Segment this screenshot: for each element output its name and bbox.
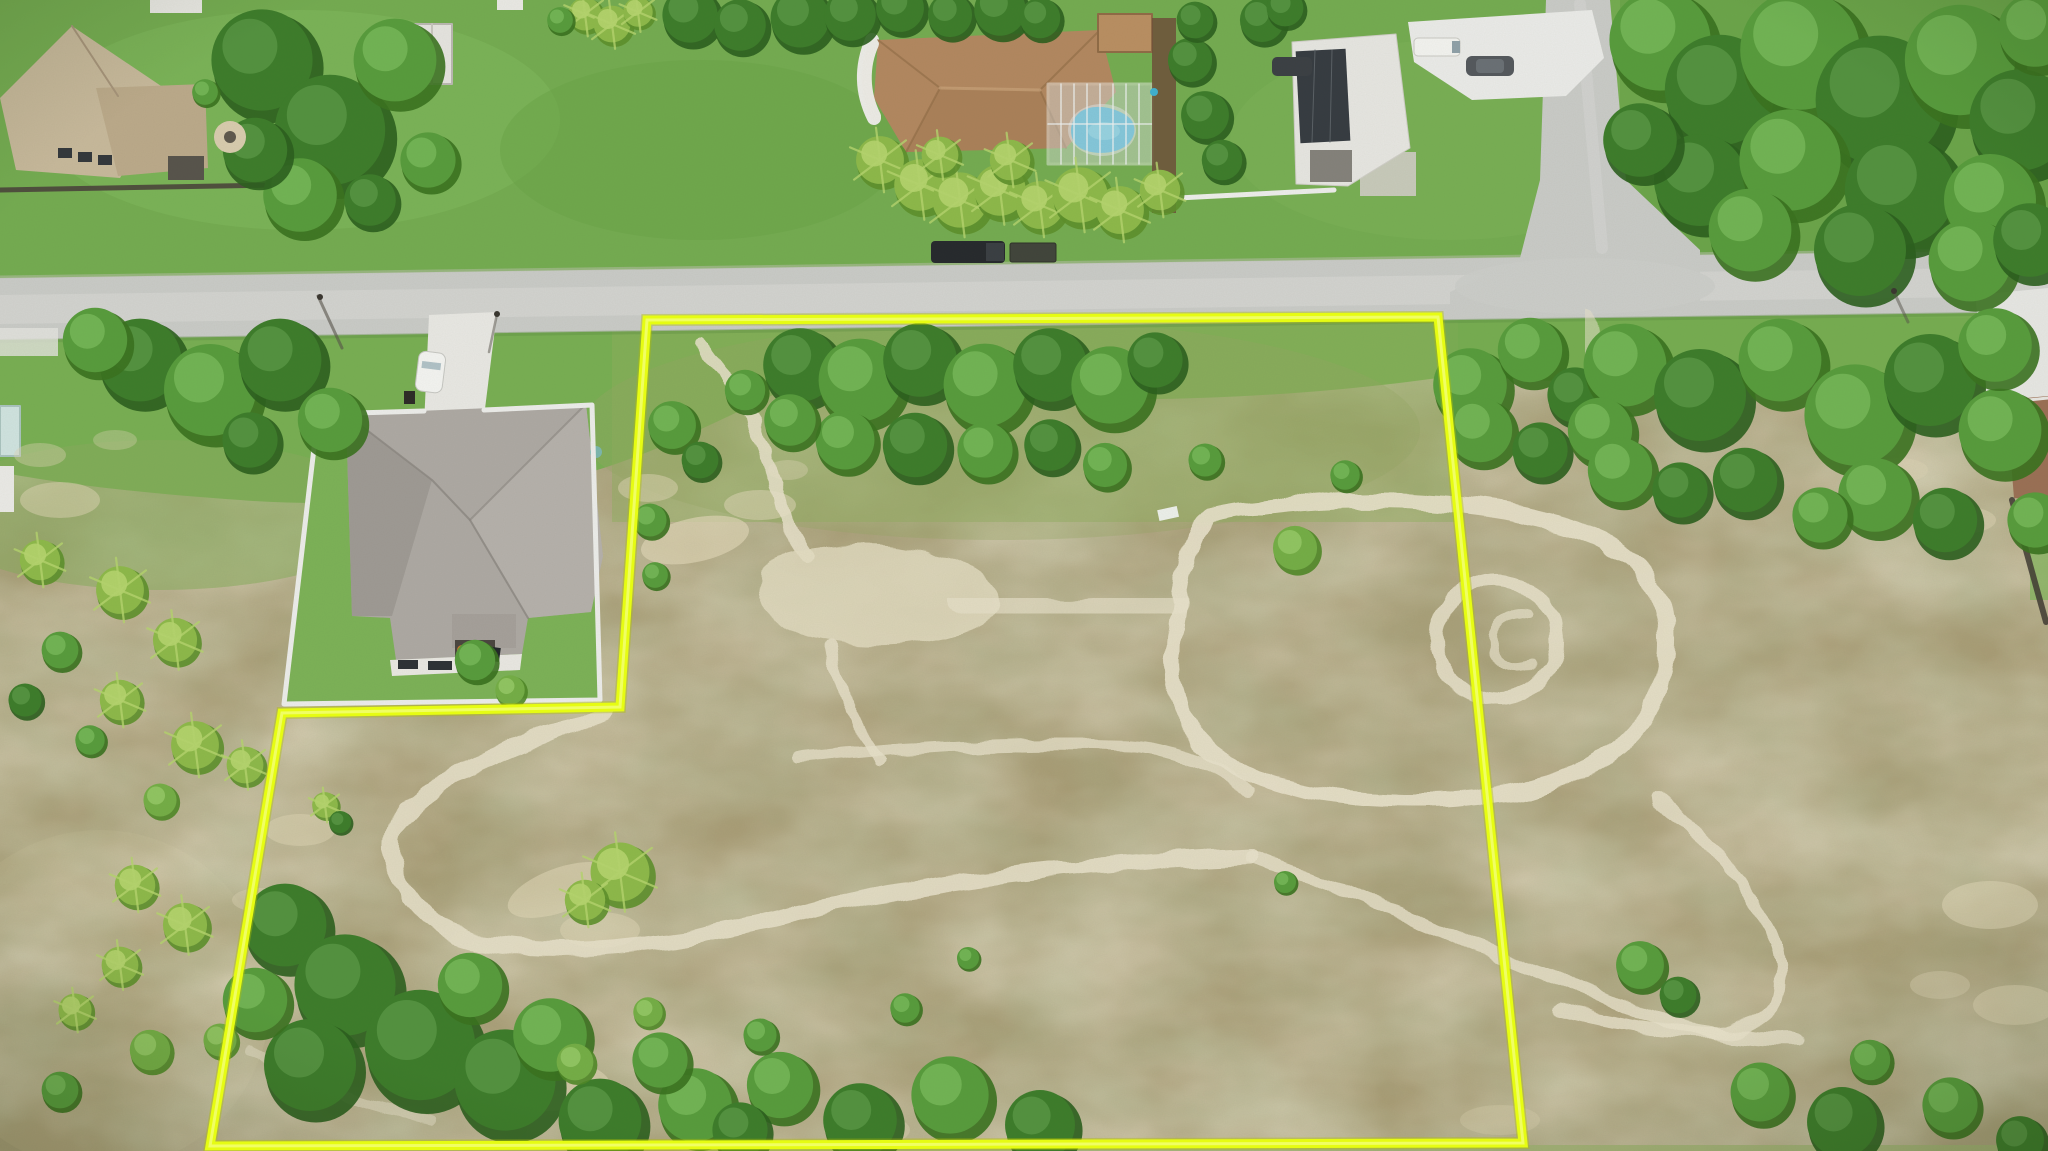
vignette bbox=[0, 0, 2048, 1151]
aerial-photo-canvas bbox=[0, 0, 2048, 1151]
aerial-photo bbox=[0, 0, 2048, 1151]
